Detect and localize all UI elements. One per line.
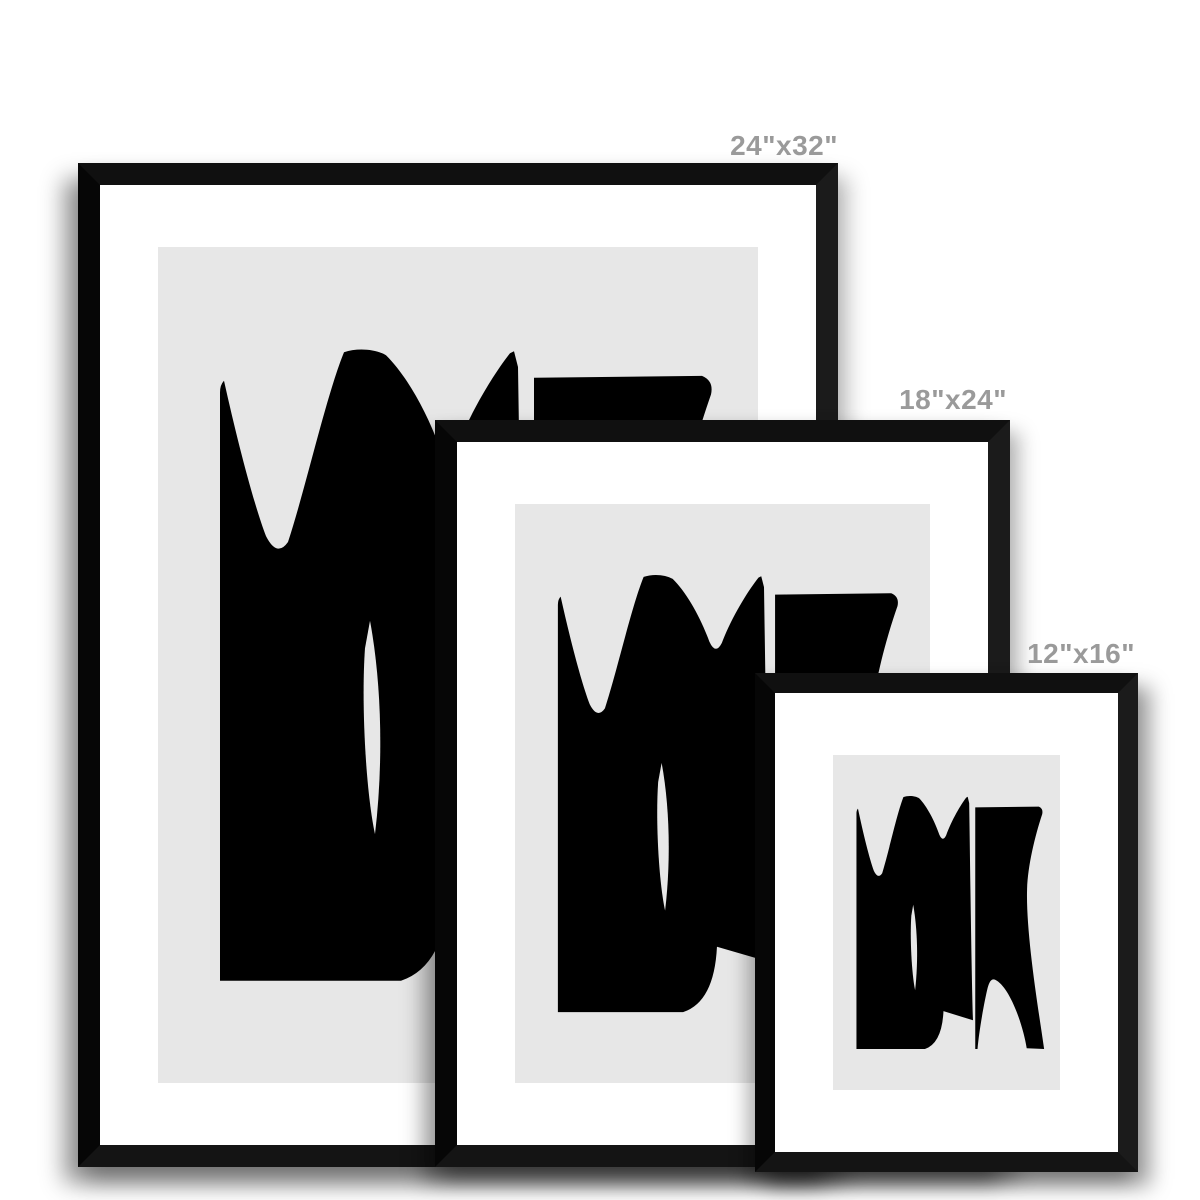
size-label-18x24: 18"x24"	[899, 384, 1007, 416]
size-label-24x32: 24"x32"	[730, 130, 838, 162]
size-label-12x16: 12"x16"	[1027, 638, 1135, 670]
frame-12x16-mat	[775, 693, 1118, 1152]
abstract-artwork-graphic	[833, 755, 1060, 1090]
frame-12x16	[755, 673, 1138, 1172]
print-size-comparison-mockup: 24"x32" 18"x24" 12"x16"	[0, 0, 1200, 1200]
frame-12x16-artwork	[833, 755, 1060, 1090]
